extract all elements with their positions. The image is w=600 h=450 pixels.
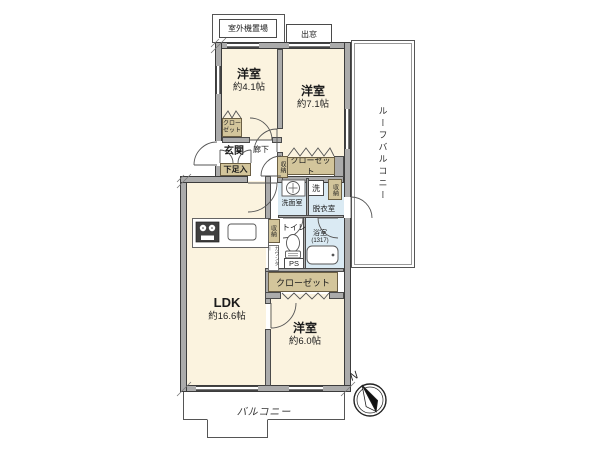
room-western-a-label: 洋室 約4.1帖 bbox=[219, 68, 279, 93]
storage-ldk: 収納 bbox=[266, 219, 280, 243]
toilet-icon bbox=[286, 235, 301, 259]
window-western-c-balcony bbox=[289, 386, 323, 391]
wall-left-lower bbox=[180, 176, 187, 392]
washer-label: 洗 bbox=[312, 183, 320, 194]
washroom-floor bbox=[278, 178, 306, 216]
counter-strip: カウンター bbox=[268, 245, 279, 271]
storage-corridor-label: 収納 bbox=[278, 161, 287, 173]
storage-corridor: 収納 bbox=[277, 156, 288, 178]
washroom-label: 洗面室 bbox=[278, 198, 306, 208]
closet-western-c: クローゼット bbox=[268, 272, 338, 292]
wall-wet-horizontal bbox=[278, 215, 344, 218]
bathroom-size: (1317) bbox=[305, 238, 335, 244]
entrance-label: 玄関 bbox=[224, 142, 244, 157]
compass-needle-white bbox=[356, 385, 376, 415]
room-western-a-size: 約4.1帖 bbox=[219, 82, 279, 93]
room-ldk-name: LDK bbox=[188, 296, 266, 311]
room-western-c-label: 洋室 約6.0帖 bbox=[268, 322, 342, 347]
shoe-cabinet-label: 下足入 bbox=[224, 164, 248, 175]
entrance-door-arc bbox=[194, 142, 217, 165]
room-ldk-label: LDK 約16.6帖 bbox=[188, 296, 266, 322]
closet-western-c-label: クローゼット bbox=[276, 276, 330, 289]
storage-dressing: 収納 bbox=[328, 179, 342, 200]
wall-ldk-right-1 bbox=[265, 176, 271, 219]
compass: N bbox=[348, 369, 386, 416]
room-western-c-size: 約6.0帖 bbox=[268, 336, 342, 347]
counter-label: カウンター bbox=[267, 246, 281, 270]
balcony-label: バルコニー bbox=[184, 403, 344, 418]
toilet-label: トイレ bbox=[282, 222, 304, 233]
wall-western-b-south-stub bbox=[334, 156, 344, 177]
room-western-b-label: 洋室 約7.1帖 bbox=[283, 85, 343, 110]
window-western-b-right bbox=[345, 109, 350, 149]
compass-needle-black bbox=[362, 382, 382, 412]
room-western-c-name: 洋室 bbox=[268, 322, 342, 336]
balcony-area: バルコニー bbox=[183, 392, 345, 420]
balcony-step bbox=[207, 419, 268, 438]
bathroom-label: 浴室 (1317) bbox=[305, 228, 335, 244]
dressing-room-label: 脱衣室 bbox=[306, 203, 342, 214]
window-ldk-balcony bbox=[196, 386, 258, 391]
outdoor-unit-label-box: 室外機置場 bbox=[219, 19, 277, 38]
room-ldk-floor bbox=[186, 181, 266, 386]
closet-western-a: クローゼット bbox=[222, 118, 242, 137]
closet-western-b-label: クローゼット bbox=[287, 157, 334, 175]
window-western-a-top bbox=[227, 43, 259, 48]
window-bay bbox=[289, 43, 330, 48]
storage-dressing-label: 収納 bbox=[331, 184, 340, 196]
bay-window-box: 出窓 bbox=[286, 24, 332, 44]
bay-window-label: 出窓 bbox=[301, 29, 317, 40]
floor-plan: ルーフバルコニー バルコニー 室外機置場 出窓 クローゼット bbox=[0, 0, 600, 450]
roof-balcony-area: ルーフバルコニー bbox=[351, 40, 415, 268]
wall-mid-left bbox=[180, 176, 248, 183]
hallway-label: 廊下 bbox=[253, 144, 269, 155]
bathroom-name: 浴室 bbox=[305, 228, 335, 238]
outdoor-unit-label: 室外機置場 bbox=[228, 23, 268, 34]
closet-western-b: クローゼット bbox=[286, 157, 335, 175]
storage-ldk-label: 収納 bbox=[269, 225, 278, 237]
room-western-b-size: 約7.1帖 bbox=[283, 99, 343, 110]
room-western-b-name: 洋室 bbox=[283, 85, 343, 99]
wall-closet-row-bottom-right bbox=[329, 292, 344, 299]
room-western-a-name: 洋室 bbox=[219, 68, 279, 82]
roof-balcony-label: ルーフバルコニー bbox=[377, 106, 390, 202]
shoe-cabinet: 下足入 bbox=[220, 163, 251, 176]
pipe-space-box: PS bbox=[284, 258, 304, 269]
pipe-space-label: PS bbox=[289, 259, 299, 268]
wall-closet-row-bottom-left bbox=[265, 292, 281, 299]
closet-western-a-label: クローゼット bbox=[223, 121, 241, 134]
roof-balcony-door-opening bbox=[344, 197, 351, 218]
room-ldk-size: 約16.6帖 bbox=[188, 311, 266, 322]
washer-space: 洗 bbox=[308, 180, 324, 196]
bathroom-floor bbox=[305, 218, 344, 270]
wall-western-a-south-2 bbox=[272, 137, 282, 143]
